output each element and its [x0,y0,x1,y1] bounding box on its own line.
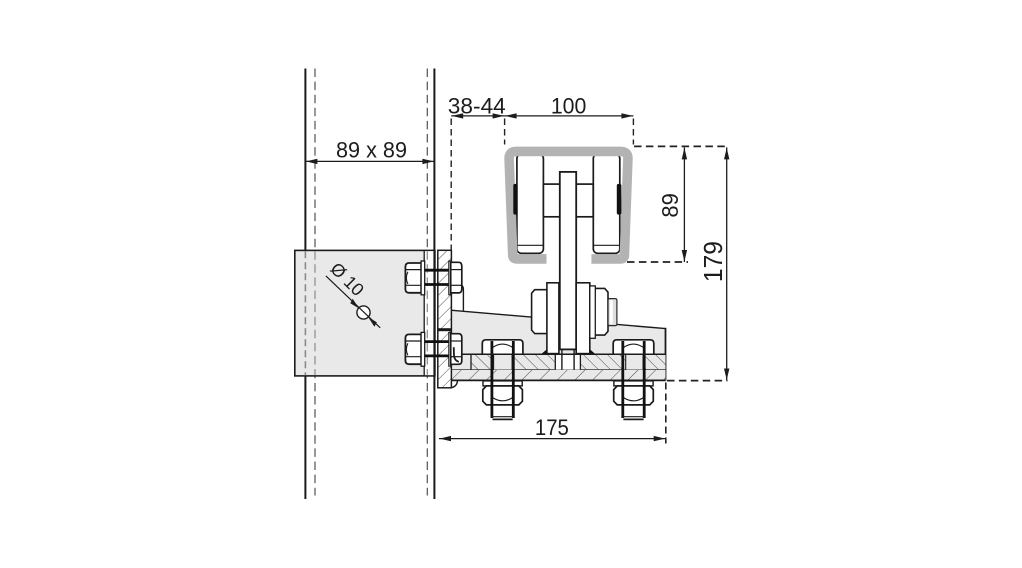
svg-text:38-44: 38-44 [448,93,506,118]
svg-text:89 x 89: 89 x 89 [336,138,407,163]
svg-text:89: 89 [657,193,683,218]
svg-text:100: 100 [551,93,587,118]
svg-text:179: 179 [698,241,728,282]
svg-text:175: 175 [535,415,569,440]
